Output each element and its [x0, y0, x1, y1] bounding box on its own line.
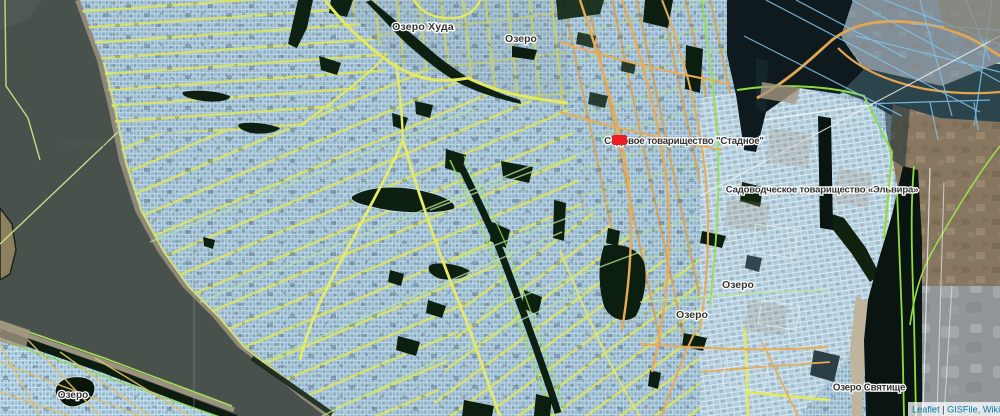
- svg-text:Озеро: Озеро: [722, 279, 754, 291]
- svg-text:Leaflet | GISFile, Wikime: Leaflet | GISFile, Wikime: [912, 405, 1000, 415]
- svg-text:геодезкарт: геодезкарт: [62, 139, 112, 148]
- svg-text:Озеро Худа: Озеро Худа: [392, 21, 454, 33]
- svg-text:Озеро: Озеро: [505, 33, 537, 45]
- svg-text:Озеро: Озеро: [676, 309, 708, 321]
- svg-text:Садоводческое товарищество «Эл: Садоводческое товарищество «Эльвира»: [726, 185, 919, 196]
- svg-text:Садовое товарищество "Стадное": Садовое товарищество "Стадное": [604, 136, 764, 147]
- svg-text:Озеро: Озеро: [58, 390, 88, 401]
- svg-text:Озеро Святище: Озеро Святище: [833, 383, 906, 394]
